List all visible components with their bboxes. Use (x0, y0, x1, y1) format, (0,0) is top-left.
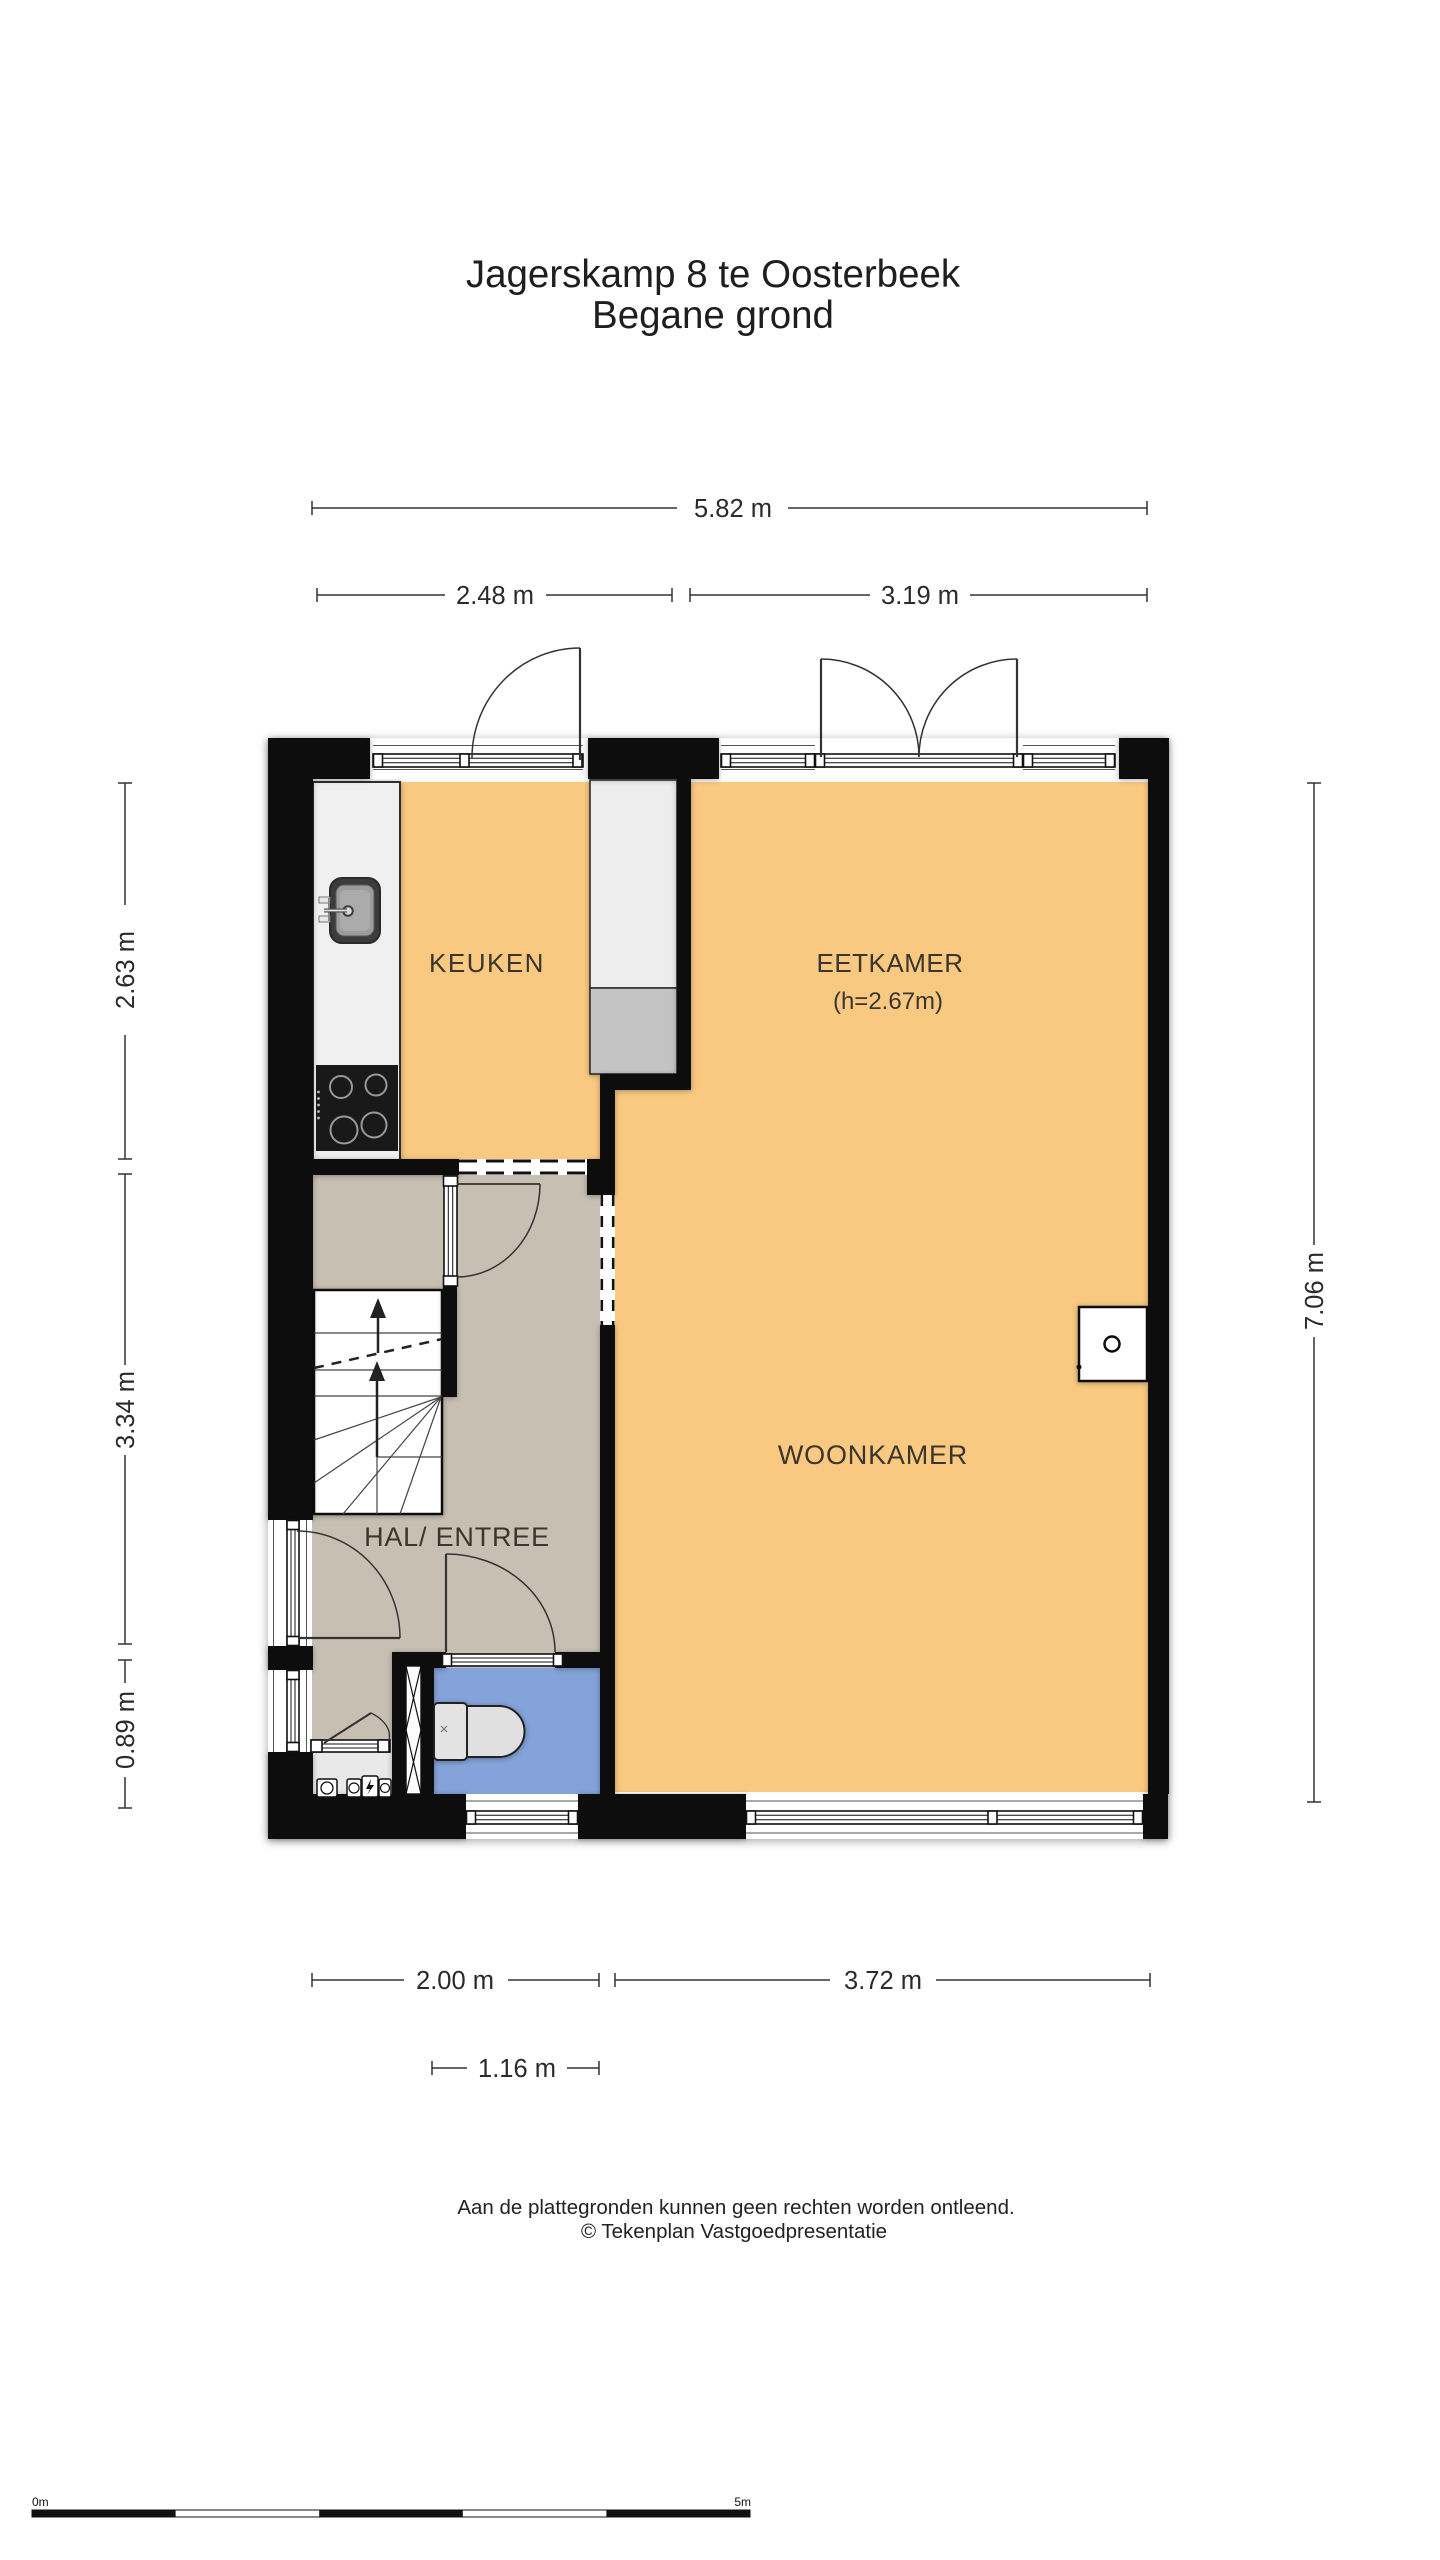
svg-text:7.06 m: 7.06 m (1301, 1252, 1329, 1330)
svg-text:2.48 m: 2.48 m (456, 582, 534, 610)
svg-text:3.72 m: 3.72 m (844, 1967, 922, 1995)
svg-text:Jagerskamp 8 te Oosterbeek: Jagerskamp 8 te Oosterbeek (466, 253, 961, 296)
svg-text:1.16 m: 1.16 m (478, 2055, 556, 2083)
svg-text:2.63 m: 2.63 m (112, 931, 140, 1009)
svg-text:Begane grond: Begane grond (592, 294, 834, 337)
svg-text:HAL/ ENTREE: HAL/ ENTREE (364, 1522, 550, 1552)
svg-text:KEUKEN: KEUKEN (429, 948, 545, 978)
svg-text:5.82 m: 5.82 m (694, 495, 772, 523)
svg-text:(h=2.67m): (h=2.67m) (833, 988, 943, 1015)
svg-text:EETKAMER: EETKAMER (816, 948, 963, 978)
svg-text:3.19 m: 3.19 m (881, 582, 959, 610)
svg-text:© Tekenplan Vastgoedpresentati: © Tekenplan Vastgoedpresentatie (581, 2220, 887, 2243)
svg-text:3.34 m: 3.34 m (112, 1371, 140, 1449)
svg-text:0.89 m: 0.89 m (112, 1691, 140, 1769)
svg-text:Aan de plattegronden kunnen ge: Aan de plattegronden kunnen geen rechten… (457, 2196, 1014, 2219)
svg-text:5m: 5m (734, 2495, 751, 2509)
svg-text:0m: 0m (32, 2495, 49, 2509)
svg-text:WOONKAMER: WOONKAMER (778, 1440, 968, 1470)
svg-text:2.00 m: 2.00 m (416, 1967, 494, 1995)
